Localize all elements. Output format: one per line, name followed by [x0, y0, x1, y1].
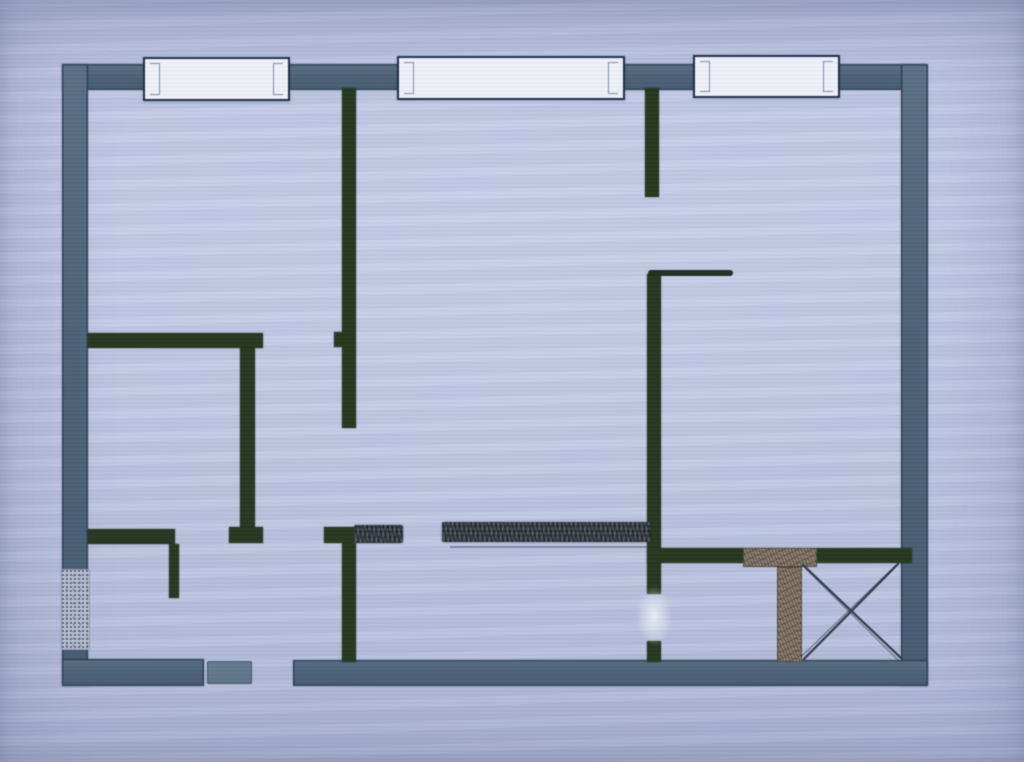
left-room-wall-horizontal — [88, 333, 263, 348]
bottom-exterior-wall-left — [62, 659, 204, 686]
right-exterior-wall — [901, 64, 928, 686]
partition-right-upper — [645, 88, 659, 197]
floor-plan-photo — [0, 0, 1024, 762]
hatched-wall-segment-short — [354, 525, 403, 543]
partition-center-lower-horizontal — [324, 527, 354, 543]
lower-left-wall-horizontal — [88, 529, 175, 544]
window-2 — [397, 56, 625, 100]
left-room-wall-foot — [229, 527, 263, 543]
left-wall-hatched-opening — [61, 569, 90, 650]
pencil-underline — [450, 546, 650, 548]
window-1 — [143, 57, 290, 101]
lower-left-wall-vertical — [169, 544, 179, 598]
left-room-wall-vertical — [240, 348, 255, 527]
window-3 — [693, 55, 840, 98]
entry-door-leaf — [207, 661, 252, 684]
floor-plan — [0, 0, 1024, 762]
paper-smudge — [636, 586, 672, 646]
hatched-wall-segment-long — [442, 522, 650, 542]
hatched-duct-vertical — [777, 567, 802, 662]
cross-brace-lines — [802, 563, 902, 660]
counter-ledge-line — [648, 270, 733, 276]
partition-center-upper — [342, 88, 356, 428]
partition-center-lower-vertical — [342, 543, 356, 662]
bottom-exterior-wall-main — [293, 660, 928, 686]
partition-center-upper-jamb — [334, 332, 342, 347]
shaft-cross-box — [802, 563, 902, 660]
